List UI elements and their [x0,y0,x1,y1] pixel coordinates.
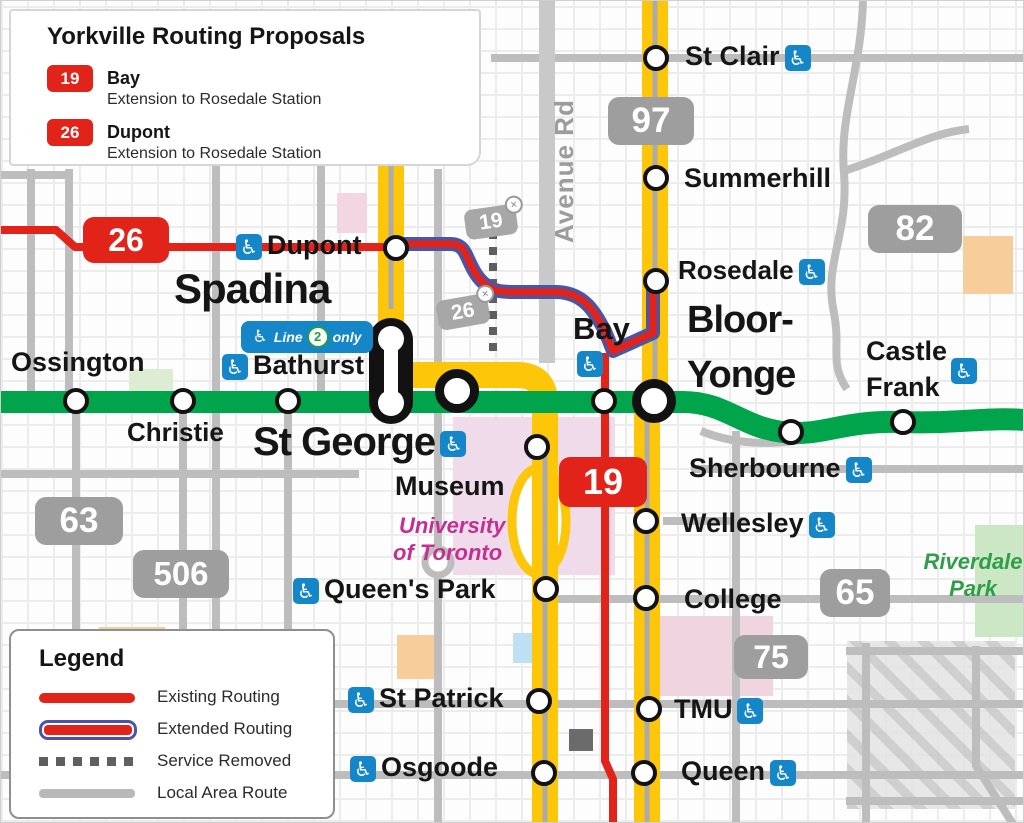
station-circle-wellesley [633,508,659,534]
accessibility-icon: ♿ [350,756,376,782]
riverdale-park-label: Park [923,576,1023,602]
badge-route-75: 75 [734,635,808,679]
accessibility-icon: ♿ [951,358,977,384]
station-circle-tmu [636,696,662,722]
badge-route-82: 82 [868,205,962,253]
station-circle-queens-park [533,576,559,602]
route-name: Dupont [107,122,170,143]
station-label-museum: Museum [395,472,505,500]
legend-label: Service Removed [157,751,291,771]
station-circle-queen [631,760,657,786]
legend-swatch-local [39,789,135,798]
legend-swatch-extended [42,723,134,737]
station-label-bay: Bay [573,313,630,346]
station-circle-st-patrick [526,688,552,714]
station-label-queens-park: ♿Queen's Park [288,575,496,604]
interchange-circle-bloor-yonge [632,379,676,423]
accessibility-icon: ♿ [253,327,268,347]
accessibility-icon: ♿ [846,457,872,483]
station-label-tmu: TMU♿ [674,695,768,724]
university-of-toronto-label: University [399,513,505,539]
station-circle-bay [591,388,617,414]
legend-label: Local Area Route [157,783,287,803]
station-label-christie: Christie [127,419,224,446]
badge-route-19: 19 [559,457,647,507]
badge-route-26: 26 [83,217,169,263]
accessibility-icon: ♿ [236,234,262,260]
station-label-dupont: ♿Dupont [231,231,361,260]
station-circle-st-clair [643,45,669,71]
station-circle-dupont [383,235,409,261]
legend-swatch-existing [39,693,135,703]
badge-route-506: 506 [133,550,229,598]
station-circle-osgoode [531,760,557,786]
station-circle-summerhill [643,165,669,191]
route-description: Extension to Rosedale Station [107,91,321,109]
interchange-barbell-spadina [369,318,413,424]
riverdale-park-label: Riverdale [923,549,1023,575]
station-circle-christie [170,388,196,414]
station-label-college: College [684,585,782,613]
station-label-rosedale: Rosedale♿ [678,257,830,285]
title-box: Yorkville Routing Proposals 19 Bay Exten… [9,9,481,166]
station-label-bathurst: ♿Bathurst [217,351,364,380]
legend-box: Legend Existing Routing Extended Routing… [9,629,335,819]
university-of-toronto-label: of Toronto [393,540,502,566]
station-label-bloor-yonge: Bloor- Yonge [687,293,795,403]
station-label-castle-frank: Castle Frank [866,333,947,405]
station-label-osgoode: ♿Osgoode [345,753,498,782]
station-circle-rosedale [643,268,669,294]
accessibility-icon: ♿ [785,45,811,71]
badge-route-97: 97 [608,97,694,145]
station-label-st-clair: St Clair♿ [685,42,816,71]
map-title: Yorkville Routing Proposals [47,23,365,51]
route-name: Bay [107,68,140,89]
legend-label: Extended Routing [157,719,292,739]
accessibility-icon: ♿ [770,760,796,786]
station-circle-college [633,585,659,611]
station-label-ossington: Ossington [11,348,145,376]
station-circle-museum [524,434,550,460]
accessibility-icon: ♿ [799,259,825,285]
legend-swatch-removed [39,757,135,766]
legend-title: Legend [39,645,124,673]
line2-only-badge: ♿ Line 2 only [241,321,373,353]
interchange-circle-st-george [435,369,479,413]
accessibility-icon: ♿ [293,578,319,604]
route19-existing [605,353,613,823]
transit-map: 26 19 97 82 63 506 65 75 19 ✕ 26 ✕ Avenu… [0,0,1024,823]
station-label-spadina: Spadina [174,267,330,311]
station-label-summerhill: Summerhill [684,164,831,192]
station-label-st-george: St George♿ [253,421,471,463]
legend-label: Existing Routing [157,687,280,707]
accessibility-icon: ♿ [809,512,835,538]
avenue-rd-label: Avenue Rd [549,53,580,243]
badge-route-26-title: 26 [47,119,93,146]
station-circle-sherbourne [778,419,804,445]
station-label-wellesley: Wellesley♿ [681,509,840,538]
badge-route-19-title: 19 [47,65,93,92]
route-description: Extension to Rosedale Station [107,145,321,163]
accessibility-icon: ♿ [737,698,763,724]
station-label-st-patrick: ♿St Patrick [343,684,504,713]
station-label-queen: Queen♿ [681,757,801,786]
station-circle-bathurst [275,388,301,414]
accessibility-icon: ♿ [348,687,374,713]
accessibility-icon: ♿ [222,354,248,380]
badge-route-63: 63 [35,497,123,545]
line2-roundel: 2 [307,326,329,348]
accessibility-icon: ♿ [577,351,603,377]
station-circle-ossington [63,388,89,414]
station-circle-castle-frank [890,409,916,435]
station-label-sherbourne: Sherbourne♿ [689,454,877,483]
accessibility-icon: ♿ [440,431,466,457]
badge-route-65: 65 [820,569,890,617]
